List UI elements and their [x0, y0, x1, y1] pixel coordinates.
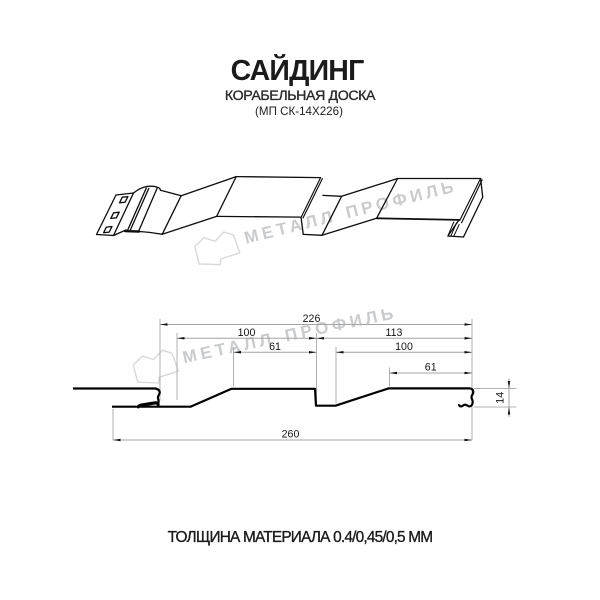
svg-text:100: 100	[395, 341, 413, 353]
svg-text:МЕТАЛЛ ПРОФИЛЬ: МЕТАЛЛ ПРОФИЛЬ	[181, 303, 399, 367]
svg-text:113: 113	[386, 327, 403, 339]
svg-text:КОРАБЕЛЬНАЯ ДОСКА: КОРАБЕЛЬНАЯ ДОСКА	[225, 88, 376, 104]
svg-text:14: 14	[495, 392, 507, 404]
svg-text:МЕТАЛЛ ПРОФИЛЬ: МЕТАЛЛ ПРОФИЛЬ	[242, 176, 459, 247]
svg-text:ТОЛЩИНА МАТЕРИАЛА 0.4/0,45/0,5: ТОЛЩИНА МАТЕРИАЛА 0.4/0,45/0,5 ММ	[168, 529, 433, 546]
svg-text:САЙДИНГ: САЙДИНГ	[231, 54, 365, 87]
svg-text:61: 61	[269, 341, 281, 353]
svg-text:(МП СК-14Х226): (МП СК-14Х226)	[255, 105, 343, 118]
svg-text:61: 61	[425, 362, 437, 374]
svg-text:260: 260	[282, 429, 300, 441]
svg-text:100: 100	[238, 327, 256, 339]
svg-text:226: 226	[303, 313, 321, 325]
